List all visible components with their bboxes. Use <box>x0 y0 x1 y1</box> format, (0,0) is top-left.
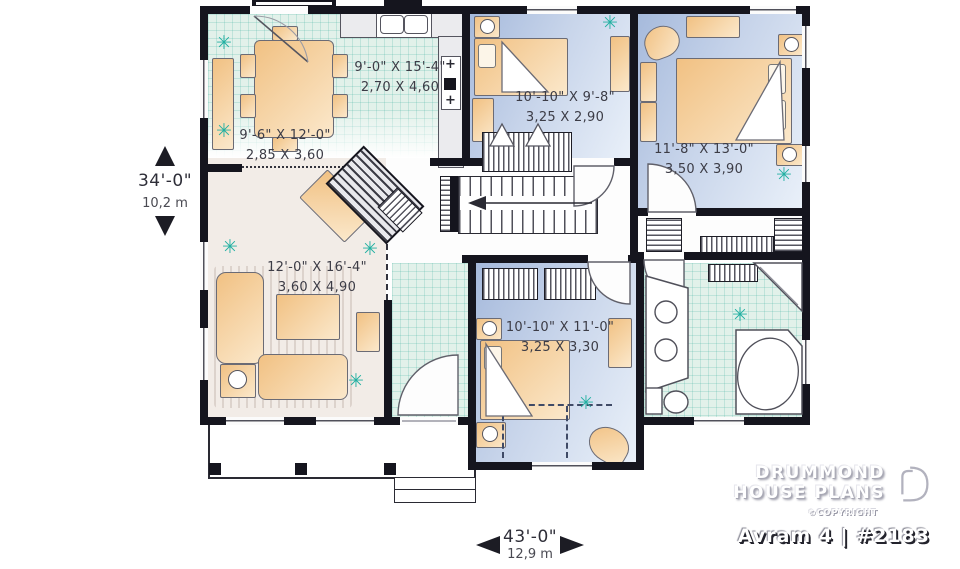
dining-table <box>254 40 334 138</box>
bedroom-bottom-size-m: 3,25 X 3,30 <box>496 338 624 358</box>
arrow-left-icon <box>476 536 500 554</box>
porch-step <box>394 489 476 503</box>
arrow-up-icon <box>155 146 175 166</box>
window <box>802 146 810 182</box>
width-m: 12,9 m <box>507 547 553 563</box>
wall-segment <box>636 255 644 470</box>
dresser <box>640 62 657 102</box>
closet-shelving <box>646 218 682 252</box>
dining-size-m: 2,85 X 3,60 <box>222 146 348 166</box>
window <box>694 417 744 425</box>
plant-icon: ✳ <box>578 394 594 413</box>
side-table <box>356 312 380 352</box>
room-divider-dashed <box>386 244 388 300</box>
bedroom-bottom-label: 10'-10" X 11'-0" 3,25 X 3,30 <box>496 318 624 357</box>
closet <box>482 268 538 300</box>
lamp <box>480 19 495 34</box>
window <box>200 328 208 380</box>
chair <box>240 94 256 118</box>
plant-icon: ✳ <box>732 306 748 325</box>
lamp <box>228 370 247 389</box>
chair <box>272 26 298 41</box>
kitchen-size-ft: 9'-0" X 15'-4" <box>330 58 470 78</box>
arrow-down-icon <box>155 216 175 236</box>
closet <box>482 132 572 172</box>
deck-rail-gap <box>256 2 332 5</box>
brand-block: DRUMMOND HOUSE PLANS ©COPYRIGHT Avram 4 … <box>720 462 930 547</box>
sink-bowl <box>404 15 428 34</box>
pillow <box>768 64 786 94</box>
plant-icon: ✳ <box>216 34 232 53</box>
wall-segment <box>468 255 476 470</box>
brand-line2: HOUSE PLANS <box>733 484 885 504</box>
foyer-floor <box>392 263 468 417</box>
living-label: 12'-0" X 16'-4" 3,60 X 4,90 <box>260 258 374 297</box>
room-bathroom-floor <box>644 263 802 417</box>
brand-copyright: ©COPYRIGHT <box>808 508 878 517</box>
lamp <box>782 147 797 162</box>
living-size-ft: 12'-0" X 16'-4" <box>260 258 374 278</box>
porch-post <box>295 463 307 475</box>
master-size-ft: 11'-8" X 13'-0" <box>636 140 772 160</box>
linen-closet <box>708 264 758 282</box>
dresser <box>686 16 740 38</box>
porch-post <box>209 463 221 475</box>
ceiling-line <box>500 404 612 406</box>
wall-segment <box>614 158 638 166</box>
depth-m: 10,2 m <box>142 196 188 211</box>
living-size-m: 3,60 X 4,90 <box>260 278 374 298</box>
porch-post <box>384 463 396 475</box>
entry-door-opening <box>400 417 458 425</box>
wall-segment <box>638 208 648 216</box>
floor-plan-canvas: + + <box>0 0 960 569</box>
wall-segment <box>430 158 482 166</box>
wall-segment <box>638 252 644 260</box>
chair <box>240 54 256 78</box>
lamp <box>482 426 498 442</box>
closet <box>544 268 596 300</box>
ceiling-line <box>566 406 568 458</box>
pillow <box>478 44 496 68</box>
master-bedroom-label: 11'-8" X 13'-0" 3,50 X 3,90 <box>636 140 772 179</box>
pillow <box>768 100 786 130</box>
kitchen-size-m: 2,70 X 4,60 <box>330 78 470 98</box>
window <box>200 60 208 118</box>
wall-segment <box>628 255 638 263</box>
sofa <box>216 272 264 364</box>
drummond-logo-icon <box>892 462 930 506</box>
dresser <box>640 102 657 142</box>
wall-segment <box>208 164 242 172</box>
window <box>802 26 810 68</box>
brand-line1: DRUMMOND <box>755 464 885 484</box>
plant-icon: ✳ <box>776 166 792 185</box>
wall-segment <box>696 208 810 216</box>
depth-ft: 34'-0" <box>138 171 192 191</box>
wall-segment <box>462 255 588 263</box>
wall-segment <box>630 6 638 263</box>
bedroom-top-size-ft: 10'-10" X 9'-8" <box>498 88 632 108</box>
bedroom-top-size-m: 3,25 X 2,90 <box>498 108 632 128</box>
kitchen-label: 9'-0" X 15'-4" 2,70 X 4,60 <box>330 58 470 97</box>
dining-size-ft: 9'-6" X 12'-0" <box>222 126 348 146</box>
coffee-table <box>276 294 340 340</box>
master-size-m: 3,50 X 3,90 <box>636 160 772 180</box>
window <box>802 340 810 384</box>
patio-door-opening <box>250 6 308 14</box>
window <box>316 417 374 425</box>
deck-rail <box>384 0 422 9</box>
window <box>226 417 284 425</box>
plan-title: Avram 4 | #2183 <box>738 525 930 547</box>
wall-segment <box>384 300 392 417</box>
closet-shelving <box>774 218 804 252</box>
dresser <box>610 36 630 92</box>
plant-icon: ✳ <box>362 240 378 259</box>
bedroom-top-label: 10'-10" X 9'-8" 3,25 X 2,90 <box>498 88 632 127</box>
sofa <box>258 354 348 400</box>
dining-label: 9'-6" X 12'-0" 2,85 X 3,60 <box>222 126 348 165</box>
room-divider-dotted <box>242 166 344 168</box>
stair-landing <box>460 196 594 210</box>
depth-dimension: 34'-0" 10,2 m <box>125 146 205 236</box>
window <box>527 6 577 14</box>
ceiling-line <box>502 406 504 458</box>
width-dimension: 43'-0" 12,9 m <box>476 527 584 563</box>
wall-segment <box>450 176 458 232</box>
window <box>532 462 592 470</box>
plant-icon: ✳ <box>602 14 618 33</box>
bedroom-bottom-size-ft: 10'-10" X 11'-0" <box>496 318 624 338</box>
lamp <box>482 321 497 336</box>
wall-segment <box>684 252 810 260</box>
plant-icon: ✳ <box>348 372 364 391</box>
arrow-right-icon <box>560 536 584 554</box>
width-ft: 43'-0" <box>503 527 557 547</box>
sink-bowl <box>380 15 404 34</box>
porch <box>208 425 476 479</box>
window <box>750 6 796 14</box>
lamp <box>784 37 799 52</box>
plant-icon: ✳ <box>222 238 238 257</box>
chair <box>332 94 348 118</box>
window <box>200 242 208 290</box>
